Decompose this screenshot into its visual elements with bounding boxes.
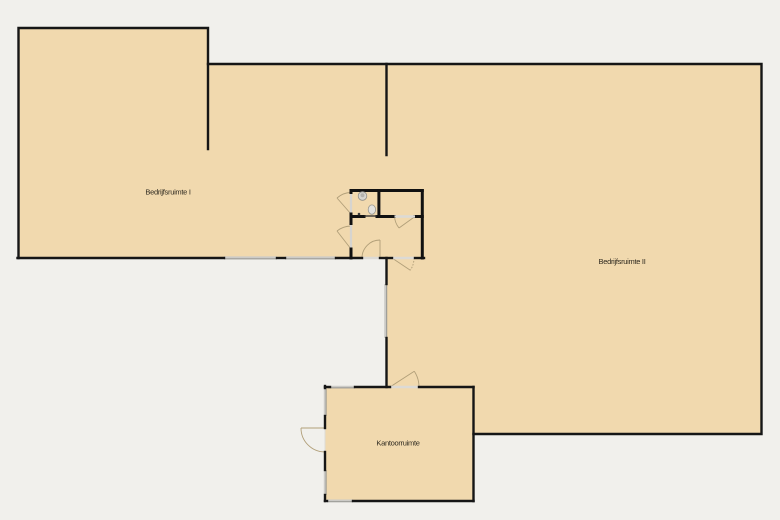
svg-text:Kantoorruimte: Kantoorruimte <box>376 439 419 448</box>
svg-text:Bedrijfsruimte II: Bedrijfsruimte II <box>599 257 646 266</box>
svg-text:Bedrijfsruimte I: Bedrijfsruimte I <box>145 187 190 196</box>
